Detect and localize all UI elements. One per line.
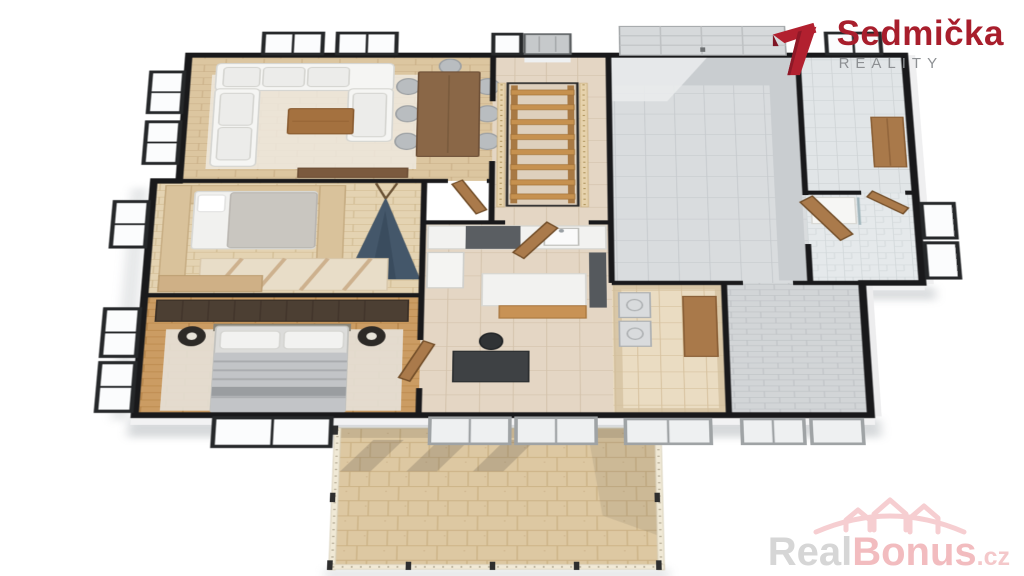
window [337, 33, 397, 54]
realbonus-watermark: RealBonus.cz [768, 488, 1010, 572]
floorplan-render-stage: Sedmička REALITY RealBonus.cz [0, 0, 1024, 576]
window [625, 419, 711, 444]
desk-chair [480, 333, 503, 349]
double-bed [208, 324, 352, 413]
window [263, 33, 323, 54]
window [742, 419, 805, 444]
dryer [619, 321, 651, 346]
logo-tagline: REALITY [839, 56, 1004, 71]
coffee-table [287, 109, 353, 134]
window [493, 34, 521, 54]
tech-room-furniture [871, 117, 907, 167]
master-bedroom-furniture [148, 300, 408, 412]
bar-counter [589, 252, 607, 307]
desk [453, 351, 529, 381]
cooktop [465, 226, 520, 249]
watermark-cz: .cz [977, 543, 1010, 571]
logo-brand-name: Sedmička [837, 16, 1004, 51]
floor-driveway [724, 283, 871, 415]
pantry-cabinet [683, 296, 718, 356]
kids-dresser [158, 276, 263, 292]
window [148, 72, 184, 113]
fridge [427, 252, 464, 287]
window [925, 243, 961, 278]
houses-icon [810, 488, 970, 538]
single-bed [191, 192, 317, 249]
agency-logo: Sedmička REALITY [769, 16, 1004, 80]
window [811, 419, 864, 444]
wardrobe [155, 300, 408, 321]
window [212, 418, 331, 447]
garage-door [619, 26, 786, 55]
window [96, 363, 135, 412]
window [111, 202, 149, 247]
terrace [327, 426, 665, 570]
tv-cabinet [298, 168, 408, 177]
logo-seven-icon [769, 16, 827, 80]
sliding-door [516, 418, 596, 444]
kitchen-island [482, 274, 586, 306]
windows-white [429, 418, 864, 444]
window [144, 122, 181, 164]
watermark-text: RealBonus.cz [768, 532, 1010, 572]
window [921, 203, 956, 238]
washing-machine [619, 293, 651, 318]
sliding-door [429, 418, 509, 444]
window [101, 309, 140, 357]
front-door [524, 34, 570, 54]
